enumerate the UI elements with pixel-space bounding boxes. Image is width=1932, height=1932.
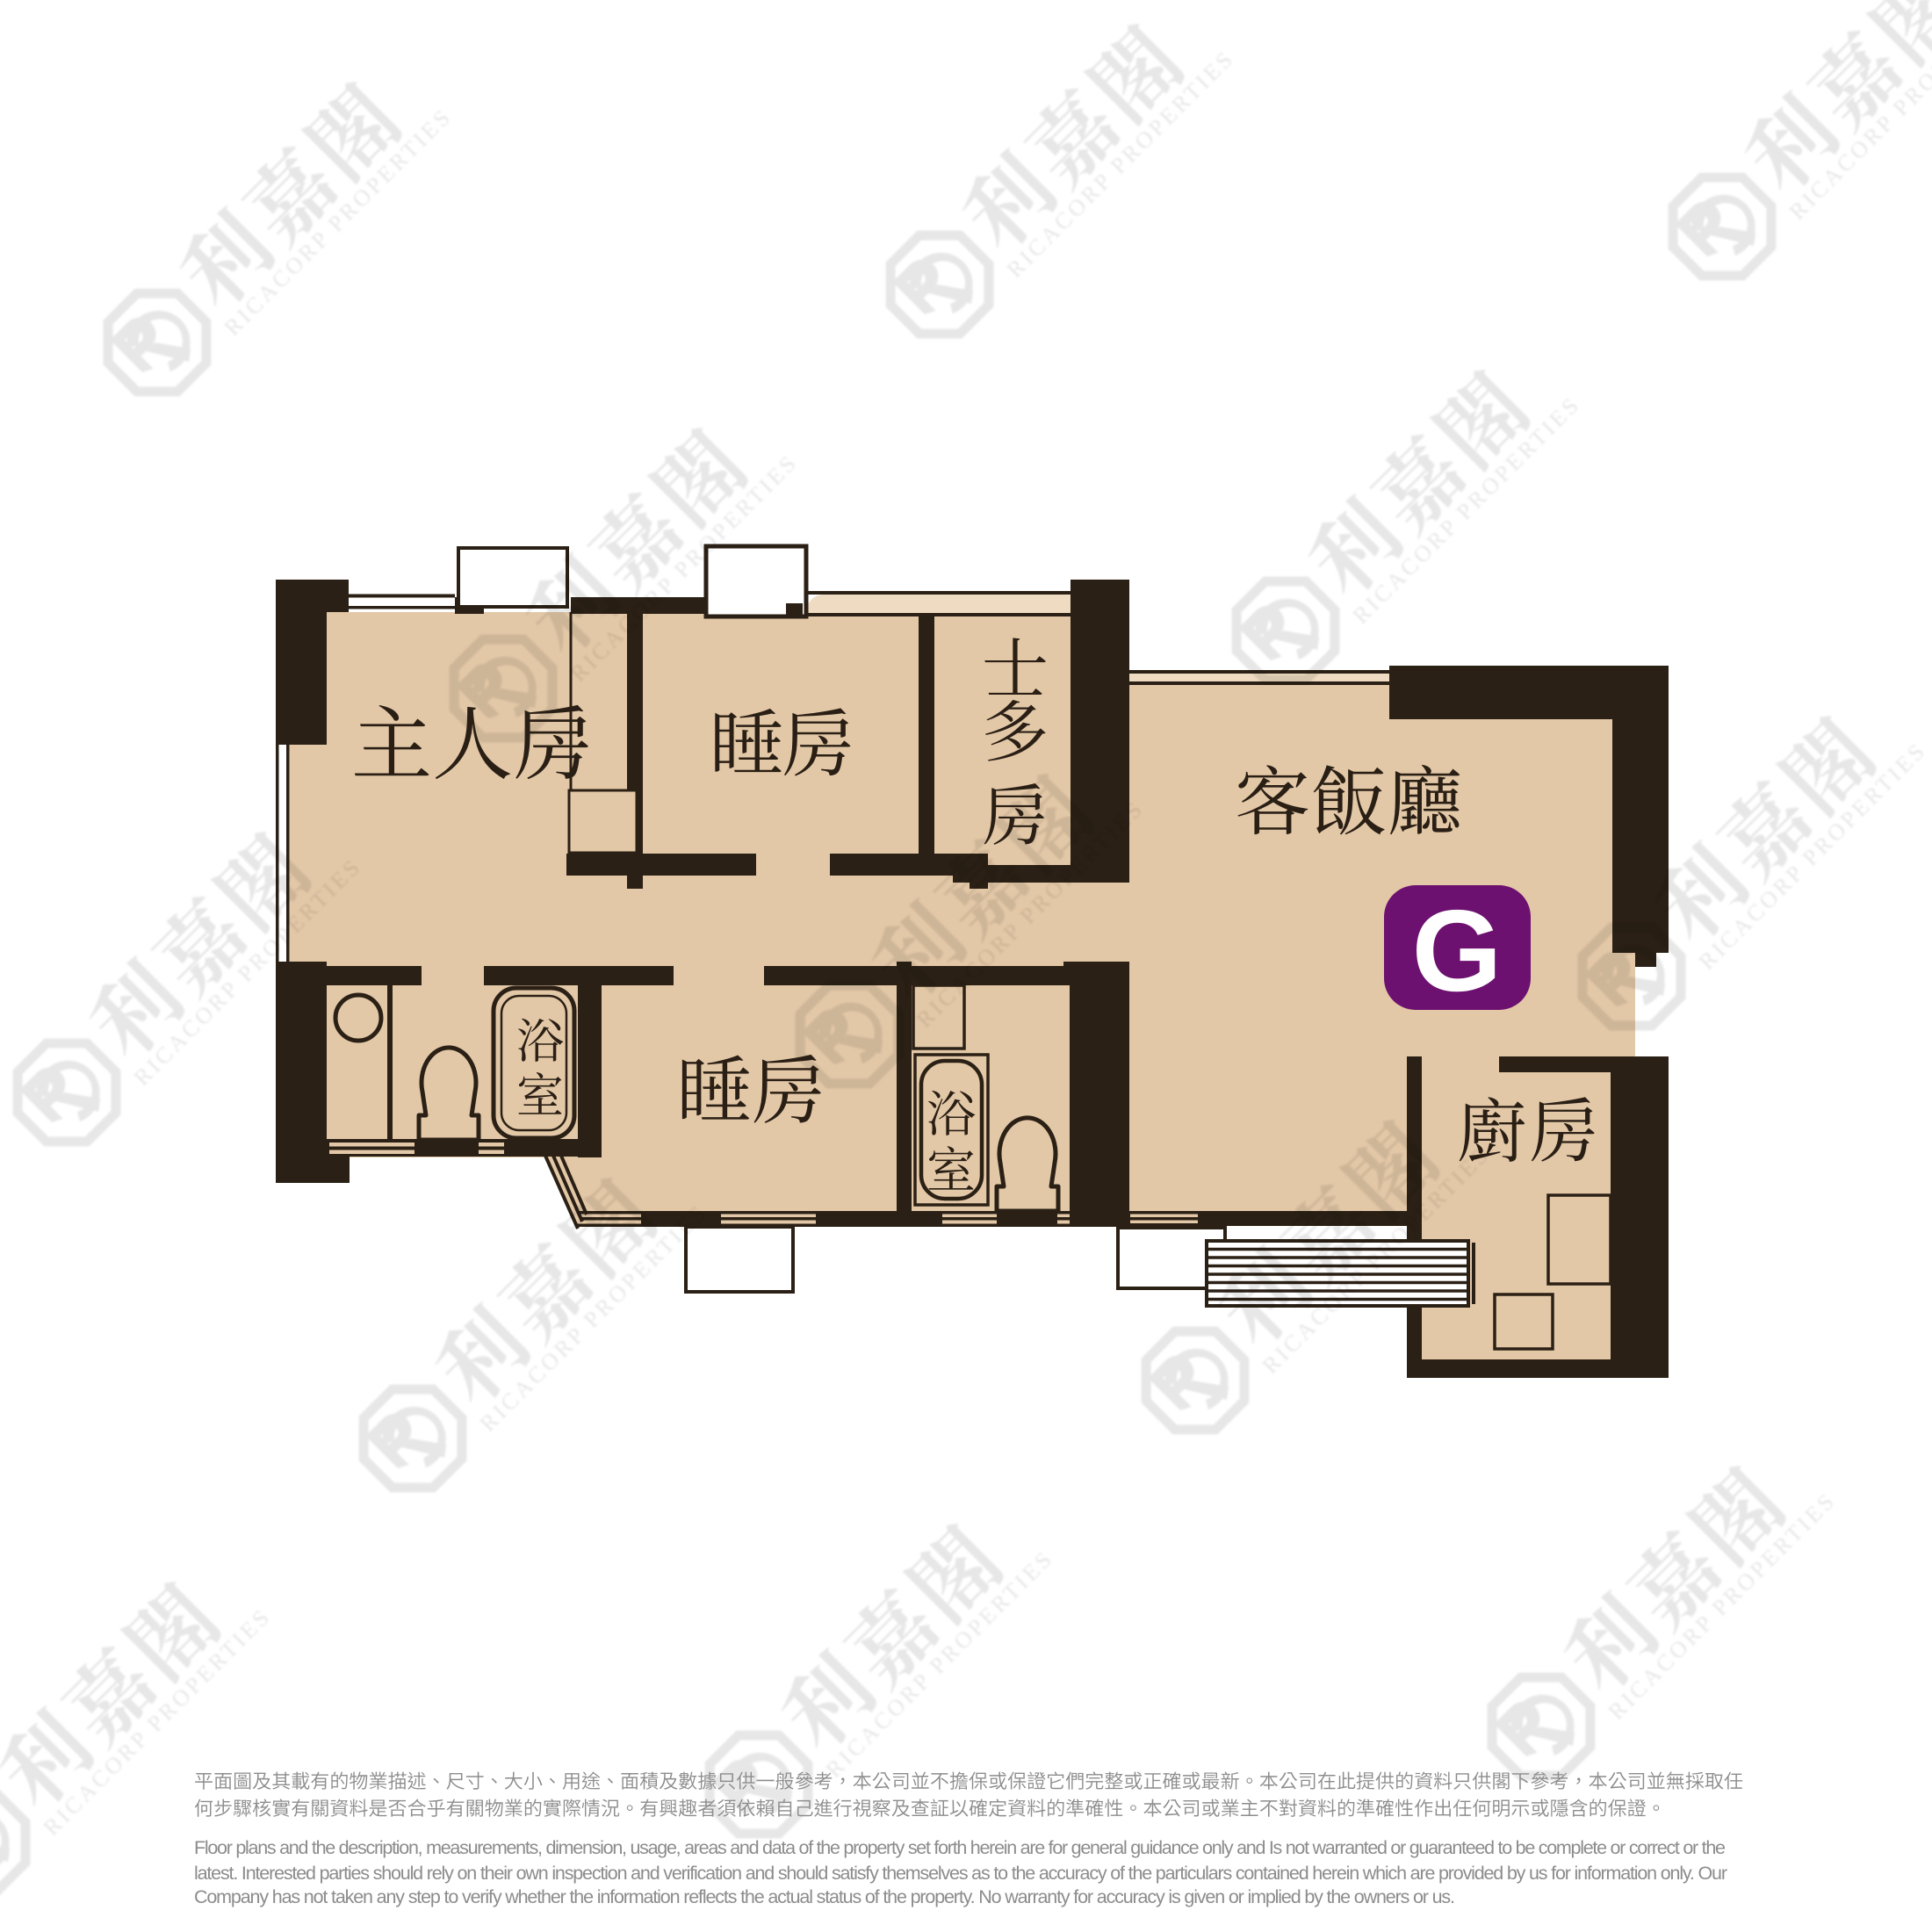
svg-text:Company has not taken any step: Company has not taken any step to verify… (194, 1886, 1455, 1907)
svg-text:Floor plans and the descriptio: Floor plans and the description, measure… (194, 1837, 1726, 1858)
svg-text:G: G (1412, 886, 1503, 1015)
svg-text:latest. Interested parties sho: latest. Interested parties should rely o… (194, 1863, 1727, 1884)
